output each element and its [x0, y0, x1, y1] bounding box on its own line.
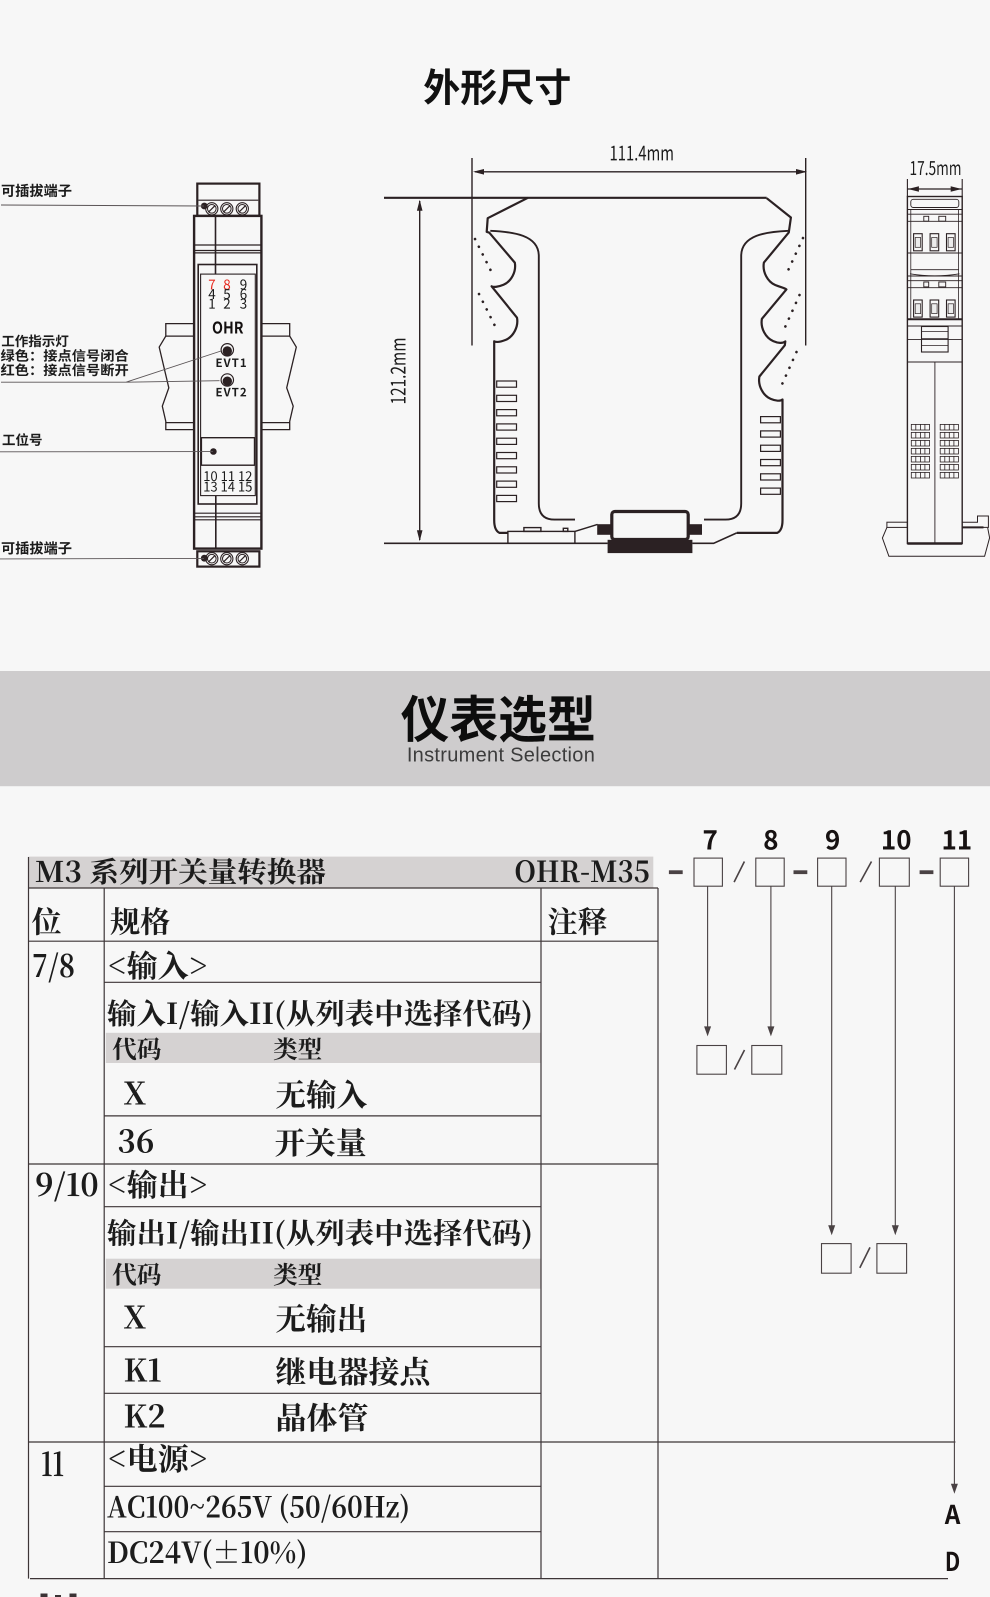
svg-text:Instrument Selection: Instrument Selection [407, 745, 595, 767]
